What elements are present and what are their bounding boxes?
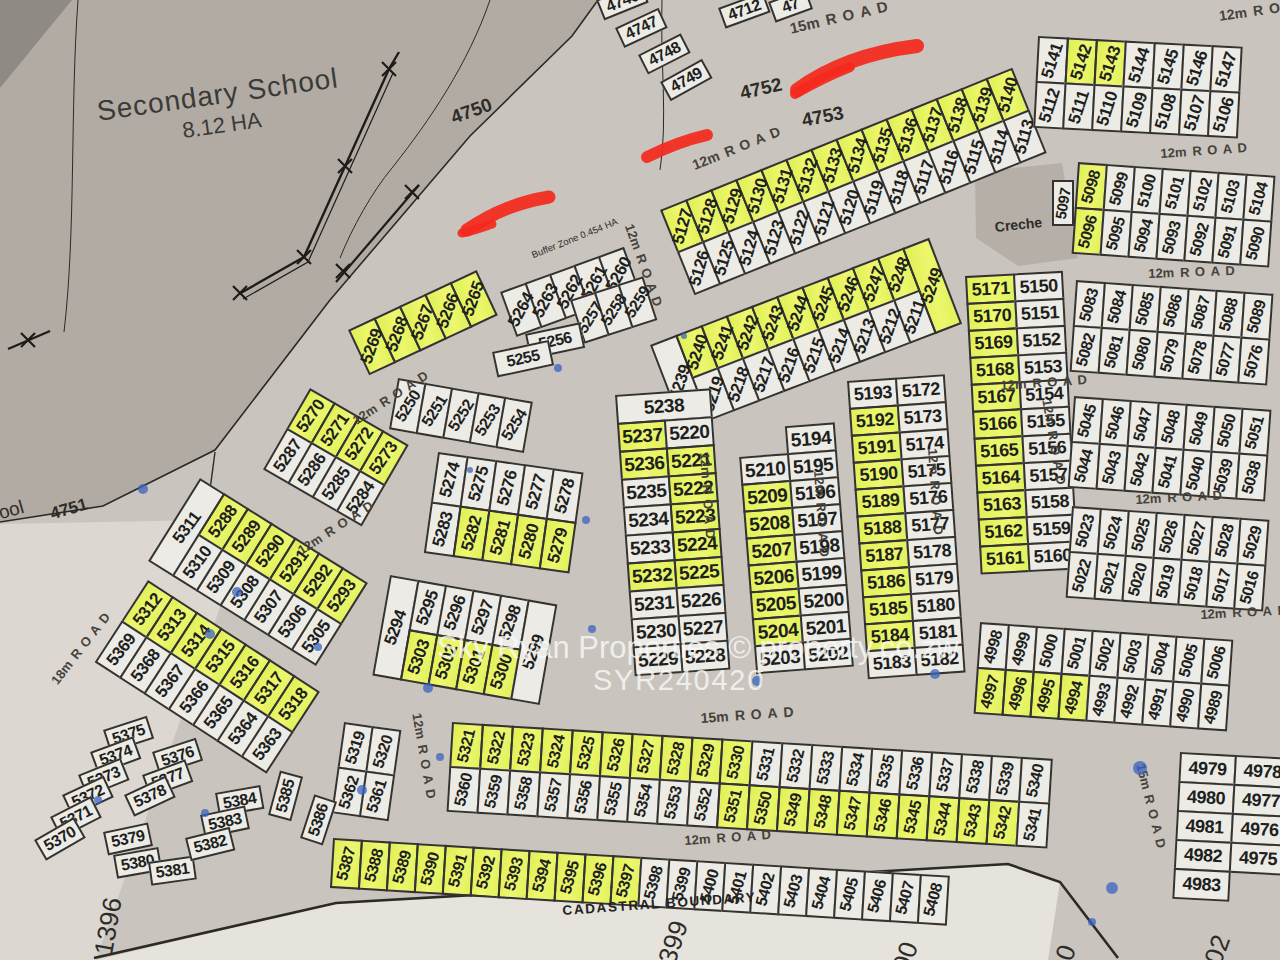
plot-number: 5170	[973, 305, 1012, 328]
ink-blot	[1088, 918, 1096, 926]
plot-5361: 5361	[359, 770, 395, 821]
plot-number: 5121	[810, 198, 839, 238]
cut-number-399: 399	[652, 917, 695, 960]
plot-number: 4983	[1182, 873, 1221, 896]
plot-number: 5404	[808, 874, 834, 911]
plot-cell: 5382	[185, 827, 235, 861]
plot-number: 5324	[544, 733, 569, 770]
plot-number: 5378	[131, 781, 169, 812]
strip-5274-5278: 5274528352755282527652815277528052785279	[424, 452, 584, 573]
block-4979-4983: 497949784980497749814976498249754983	[1172, 752, 1280, 905]
plot-5279: 5279	[539, 518, 577, 574]
strip-5020s: 5023502250245021502550205026501950275018…	[1066, 506, 1270, 612]
plot-number: 5189	[861, 490, 900, 514]
plot-number: 5101	[1162, 174, 1189, 211]
plot-number: 5141	[1037, 40, 1067, 80]
plot-number: 4989	[1200, 688, 1227, 725]
plot-number: 5278	[550, 476, 579, 516]
plot-number: 5234	[627, 508, 669, 533]
plot-number: 5321	[454, 728, 479, 765]
plot-number: 5392	[473, 854, 499, 891]
plot-number: 5193	[853, 382, 892, 406]
plot-number: 5236	[624, 452, 666, 477]
plot-number: 5328	[664, 740, 689, 777]
beacon-1396: 1396	[88, 895, 129, 957]
road-label-12m-o: 12mROAD	[409, 712, 440, 805]
plot-number: 5347	[840, 795, 865, 832]
plot-number: 47	[780, 0, 802, 17]
plot-number: 5143	[1095, 43, 1125, 83]
plot-cell: 53405341	[1015, 757, 1052, 849]
plot-number: 5333	[813, 749, 838, 786]
plot-number: 5329	[693, 742, 718, 779]
plot-number: 5108	[1151, 91, 1181, 131]
plot-number: 5088	[1216, 296, 1243, 333]
plot-number: 5235	[625, 480, 667, 505]
fence-line	[8, 331, 50, 349]
cut-number-00: 00	[886, 938, 925, 960]
plot-number: 5164	[981, 466, 1020, 489]
plot-number: 5323	[514, 731, 539, 768]
plot-4749: 4749	[660, 59, 713, 102]
cadastral-map: Secondary School 8.12 HA 512751265128512…	[0, 0, 1280, 960]
plot-number: 5050	[1214, 412, 1241, 449]
watermark-line2: SYR240420	[593, 664, 765, 697]
plot-number: 4979	[1188, 757, 1227, 780]
plot-5382: 5382	[185, 827, 235, 861]
plot-number: 5137	[918, 105, 947, 145]
plot-number: 5405	[836, 876, 862, 913]
plot-number: 5386	[305, 801, 333, 839]
plot-number: 5045	[1074, 402, 1101, 439]
plot-number: 5362	[336, 773, 364, 811]
plot-number: 5160	[1033, 545, 1072, 568]
plot-number: 5126	[685, 248, 714, 288]
plot-number: 5097	[1052, 186, 1074, 220]
plot-number: 5024	[1100, 514, 1127, 551]
red-marker-stroke	[797, 46, 917, 90]
plot-5076: 5076	[1237, 337, 1270, 386]
plot-number: 4994	[1061, 679, 1088, 716]
plot-number: 5354	[631, 782, 656, 819]
plot-4747: 4747	[615, 8, 668, 48]
stand-4751: 4751	[48, 495, 90, 525]
road-word: ROAD	[716, 827, 777, 846]
plot-number: 5103	[1218, 178, 1245, 215]
plot-number: 5138	[943, 95, 972, 135]
plot-number: 4712	[725, 0, 763, 24]
plot-cell: 5370	[34, 817, 86, 861]
plot-number: 5346	[870, 797, 895, 834]
plot-number: 5092	[1187, 221, 1214, 258]
road-word: ROAD	[1167, 487, 1228, 505]
red-marker-stroke	[795, 67, 850, 94]
plot-number: 5082	[1073, 331, 1100, 368]
plot-number: 5188	[863, 517, 902, 541]
road-word: ROAD	[824, 0, 895, 28]
plot-number: 5341	[1020, 806, 1045, 843]
plot-number: 5387	[333, 845, 359, 882]
plot-5255: 5255	[492, 340, 554, 377]
plot-number: 5041	[1155, 453, 1182, 490]
red-marker-stroke	[462, 224, 492, 233]
school-area-label: Secondary School 8.12 HA	[95, 62, 344, 155]
plot-number: 5231	[633, 591, 675, 616]
plot-number: 5132	[793, 156, 822, 196]
plot-number: 5205	[755, 591, 797, 616]
plot-number: 5326	[604, 737, 629, 774]
plot-number: 5159	[1032, 518, 1071, 541]
plot-number: 5185	[868, 597, 907, 621]
plot-number: 5145	[1153, 46, 1183, 86]
plot-number: 5142	[1066, 42, 1096, 82]
plot-cell: 4983	[1172, 868, 1280, 905]
plot-number: 5098	[1078, 168, 1105, 205]
plot-number: 5165	[980, 439, 1019, 462]
plot-number: 5381	[155, 859, 191, 882]
plot-number: 4996	[1005, 675, 1032, 712]
plot-number: 5407	[892, 879, 918, 916]
plot-number: 5276	[493, 468, 522, 508]
stand-4752: 4752	[738, 73, 784, 104]
plot-number: 5320	[370, 732, 398, 770]
plot-cell: 5255	[492, 340, 554, 377]
plot-number: 5336	[903, 755, 928, 792]
plot-number: 5340	[1023, 762, 1048, 799]
plot-number: 5135	[868, 125, 897, 165]
plot-number: 5016	[1236, 568, 1263, 605]
plot-number: 5335	[873, 753, 898, 790]
plot-number: 5001	[1064, 634, 1091, 671]
plot-number: 5026	[1156, 518, 1183, 555]
plot-5385: 5385	[268, 771, 303, 822]
road-word: ROAD	[722, 121, 788, 160]
plot-number: 5344	[930, 801, 955, 838]
plot-number: 5023	[1072, 512, 1099, 549]
strip-5127-5140: 5127512651285125512951245130512351315122…	[660, 68, 1047, 296]
plot-number: 4992	[1117, 683, 1144, 720]
plot-number: 5331	[753, 746, 778, 783]
plot-number: 5238	[643, 394, 685, 419]
plot-number: 5179	[914, 567, 953, 591]
plot-number: 5077	[1213, 341, 1240, 378]
cut-number-40: 40	[1044, 941, 1083, 960]
plot-number: 5350	[751, 790, 776, 827]
plot-number: 5104	[1246, 180, 1273, 217]
plot-number: 5358	[511, 775, 536, 812]
plot-number: 5395	[557, 859, 583, 896]
plot-number: 5342	[990, 804, 1015, 841]
plot-5090: 5090	[1239, 219, 1272, 268]
fence-x-mark	[336, 264, 350, 278]
fence-line	[336, 185, 419, 282]
plot-number: 5349	[781, 792, 806, 829]
plot-number: 5275	[464, 464, 493, 504]
plot-5038: 5038	[1235, 453, 1268, 502]
plot-cell: 4712	[718, 0, 771, 29]
plot-number: 5123	[760, 218, 789, 258]
plot-number: 5357	[541, 777, 566, 814]
block-5160s: 5171515051705151516951525168515351675154…	[965, 271, 1079, 575]
road-label-12m-n: 12mROAD	[684, 827, 777, 848]
school-text-fragment: ool	[0, 496, 26, 524]
plot-cell: 50295016	[1233, 518, 1269, 612]
road-word: ROAD	[1032, 372, 1093, 391]
plot-5255-single: 5255	[492, 340, 554, 377]
plot-cell: 51045090	[1239, 174, 1275, 268]
plot-number: 5274	[435, 460, 464, 500]
plot-number: 5232	[631, 563, 673, 588]
plot-number: 5020	[1125, 561, 1152, 598]
plot-number: 5355	[601, 781, 626, 818]
plot-number: 5391	[445, 852, 471, 889]
strip-5319-5320: 5319536253205361	[331, 722, 401, 821]
plot-number: 5210	[744, 457, 786, 482]
plot-5051: 5051	[1238, 408, 1271, 457]
plot-5385: 5385	[268, 771, 303, 822]
plot-5370: 5370	[34, 817, 86, 861]
plot-5161: 5161	[979, 543, 1030, 575]
plot-number: 5079	[1157, 337, 1184, 374]
plot-number: 5186	[866, 570, 905, 594]
plot-5378: 5378	[124, 776, 176, 817]
plot-number: 5389	[389, 849, 415, 886]
plot-number: 5017	[1209, 567, 1236, 604]
creche-label: Creche	[994, 214, 1043, 235]
strip-4990s: 4998499749994996500049955001499450024993…	[974, 622, 1234, 731]
plot-number: 5115	[960, 137, 989, 176]
plot-number: 5208	[748, 511, 790, 536]
plot-number: 5147	[1211, 49, 1241, 89]
plot-number: 5114	[985, 127, 1014, 166]
plot-5378: 5378	[124, 776, 176, 817]
plot-number: 5116	[935, 147, 964, 186]
strip-5265-5269: 52695268526752665265	[348, 270, 498, 375]
strip-5141-5147: 5141511251425111514351105144510951455108…	[1033, 36, 1243, 139]
plot-cell: 5385	[268, 771, 303, 822]
road-word: ROAD	[1141, 793, 1170, 855]
road-word: ROAD	[1252, 0, 1280, 19]
plot-number: 5199	[801, 561, 843, 586]
plot-cell: 4747	[615, 8, 668, 48]
road-label-12m-topright: 12mROAD	[1218, 0, 1280, 24]
road-word: ROAD	[734, 703, 800, 723]
plot-number: 5130	[743, 176, 772, 216]
plot-number: 5345	[900, 799, 925, 836]
plot-cell: 51475106	[1207, 45, 1243, 138]
plot-number: 5352	[691, 786, 716, 823]
plot-number: 4981	[1185, 815, 1224, 838]
plot-number: 5393	[501, 856, 527, 893]
plot-number: 5356	[571, 779, 596, 816]
plot-number: 5136	[893, 115, 922, 155]
plot-number: 5171	[971, 278, 1010, 301]
road-label-12m-f: 12mROAD	[1148, 263, 1240, 281]
plot-number: 4977	[1242, 789, 1280, 812]
watermark-line1: Sky Ryan Properties © property.co.zw	[437, 630, 959, 666]
plot-number: 5361	[363, 777, 391, 815]
ink-blot	[138, 484, 148, 494]
plot-number: 5281	[486, 518, 515, 558]
plot-5340: 5340	[1018, 757, 1053, 805]
plot-number: 5085	[1132, 290, 1159, 327]
plot-number: 5237	[622, 424, 664, 449]
plot-number: 5327	[634, 738, 659, 775]
plot-number: 4980	[1187, 786, 1226, 809]
plot-number: 5048	[1158, 408, 1185, 445]
plot-number: 5394	[529, 857, 555, 894]
plot-5341: 5341	[1015, 801, 1050, 849]
plot-cell: 50064989	[1197, 638, 1233, 732]
strip-5080s: 5083508250845081508550805086507950875078…	[1070, 280, 1274, 386]
plot-5370: 5370	[34, 817, 86, 861]
plot-number: 4993	[1089, 681, 1116, 718]
plot-number: 5129	[718, 186, 747, 226]
road-label-15m-right: 15mROAD	[1133, 762, 1170, 855]
plot-number: 5226	[680, 588, 722, 613]
plot-number: 5086	[1160, 292, 1187, 329]
plot-number: 4747	[622, 13, 660, 44]
plot-5278: 5278	[546, 468, 584, 524]
plot-number: 5206	[753, 565, 795, 590]
plot-number: 5133	[818, 146, 847, 186]
plot-number: 5194	[790, 426, 832, 451]
plot-number: 5332	[783, 748, 808, 785]
plot-number: 5004	[1148, 640, 1175, 677]
plot-number: 5150	[1019, 275, 1058, 298]
plot-cell: 50895076	[1237, 292, 1273, 386]
plot-number: 4748	[645, 38, 683, 69]
plot-number: 5134	[843, 136, 872, 176]
plot-number: 5325	[574, 735, 599, 772]
plot-number: 5192	[855, 409, 894, 433]
plot-number: 5051	[1242, 414, 1269, 451]
plot-number: 5319	[342, 729, 370, 767]
plot-number: 4978	[1243, 760, 1280, 783]
plot-number: 5337	[933, 757, 958, 794]
plot-number: 5093	[1159, 219, 1186, 256]
plot-number: 5152	[1022, 329, 1061, 352]
plot-number: 5280	[514, 522, 543, 562]
plot-5382: 5382	[185, 827, 235, 861]
plot-number: 5190	[859, 463, 898, 487]
plot-number: 5127	[668, 206, 697, 246]
plot-number: 5095	[1103, 215, 1130, 252]
plot-number: 5124	[735, 228, 764, 268]
plot-cell: 5378	[124, 776, 176, 817]
plot-cell: 5097	[1052, 180, 1074, 226]
plot-number: 5111	[1064, 87, 1094, 125]
plot-number: 5334	[843, 751, 868, 788]
plot-number: 5279	[543, 526, 572, 566]
plot-number: 5220	[668, 421, 710, 446]
plot-number: 5209	[746, 484, 788, 509]
plot-number: 5084	[1104, 288, 1131, 325]
plot-cell: 5408	[917, 874, 950, 926]
plot-5089: 5089	[1240, 292, 1273, 341]
plot-number: 5172	[901, 379, 940, 403]
plot-4989: 4989	[1197, 683, 1230, 732]
plot-number: 4991	[1144, 684, 1171, 721]
plot-number: 5151	[1021, 302, 1060, 325]
strip-5040s: 5045504450465043504750425048504150495040…	[1068, 396, 1272, 502]
plot-number: 5225	[678, 560, 720, 585]
plot-number: 5403	[780, 873, 806, 910]
plot-number: 5080	[1129, 335, 1156, 372]
plot-number: 5106	[1209, 94, 1239, 134]
plot-number: 5112	[1035, 86, 1065, 125]
plot-number: 5351	[721, 788, 746, 825]
plot-number: 5002	[1092, 636, 1119, 673]
plot-5386: 5386	[300, 794, 337, 845]
plot-5106: 5106	[1207, 90, 1240, 139]
plot-5097: 5097	[1052, 180, 1074, 226]
plot-number: 5107	[1180, 93, 1210, 133]
plot-number: 5248	[884, 254, 915, 294]
plot-number: 5118	[885, 168, 914, 207]
fence-x-mark	[405, 185, 419, 199]
plot-number: 4999	[1008, 630, 1035, 667]
plot-number: 5090	[1242, 224, 1269, 261]
plot-number: 5078	[1185, 339, 1212, 376]
plot-number: 4749	[667, 64, 705, 96]
plot-number: 5000	[1036, 632, 1063, 669]
plot-number: 5255	[505, 346, 542, 371]
plot-4983: 4983	[1172, 868, 1231, 902]
plot-number: 5096	[1075, 213, 1102, 250]
plot-number: 4990	[1172, 686, 1199, 723]
plot-number: 5265	[458, 279, 489, 320]
plot-number: 5019	[1153, 563, 1180, 600]
plot-number: 5021	[1097, 559, 1124, 596]
plot-number: 5146	[1182, 48, 1212, 88]
plot-number: 5233	[629, 536, 671, 561]
road-word: ROAD	[1192, 140, 1253, 159]
plot-number: 5047	[1130, 406, 1157, 443]
plot-number: 5370	[41, 823, 79, 855]
plot-number: 5044	[1071, 447, 1098, 484]
plot-number: 5046	[1102, 404, 1129, 441]
stand-4753: 4753	[800, 102, 846, 132]
plot-number: 5408	[920, 881, 946, 918]
plot-number: 5043	[1099, 449, 1126, 486]
plot-number: 5094	[1131, 217, 1158, 254]
plot-number: 5211	[900, 297, 930, 337]
plot-number: 5390	[417, 850, 443, 887]
plot-number: 5109	[1122, 90, 1152, 130]
plot-number: 5348	[811, 793, 836, 830]
plot-number: 5282	[457, 513, 486, 553]
plot-number: 5249	[917, 266, 948, 306]
plot-cell: 50515038	[1235, 408, 1271, 502]
plot-4749-single: 4749	[660, 59, 713, 102]
plot-number: 5119	[860, 178, 889, 217]
plot-number: 5161	[985, 547, 1024, 570]
plot-cell: 5386	[300, 794, 337, 845]
plot-number: 5117	[910, 158, 939, 197]
plot-number: 5187	[865, 544, 904, 568]
plot-number: 5283	[428, 509, 457, 549]
plot-number: 5338	[963, 759, 988, 796]
plot-number: 4998	[980, 628, 1007, 665]
plot-number: 5385	[273, 777, 299, 814]
plot-number: 4995	[1033, 677, 1060, 714]
plot-number: 4976	[1240, 818, 1279, 841]
plot-number: 5087	[1188, 294, 1215, 331]
plot-number: 5360	[451, 771, 476, 808]
plot-number: 5003	[1120, 638, 1147, 675]
ink-blot	[582, 516, 590, 524]
